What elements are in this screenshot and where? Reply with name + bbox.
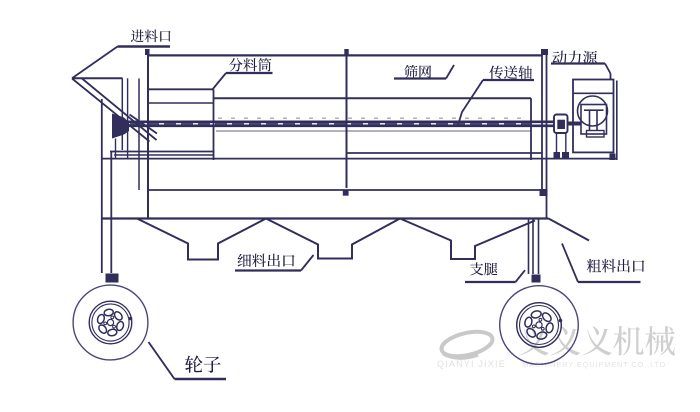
svg-text:QIANYI JIXIE: QIANYI JIXIE bbox=[437, 359, 506, 369]
